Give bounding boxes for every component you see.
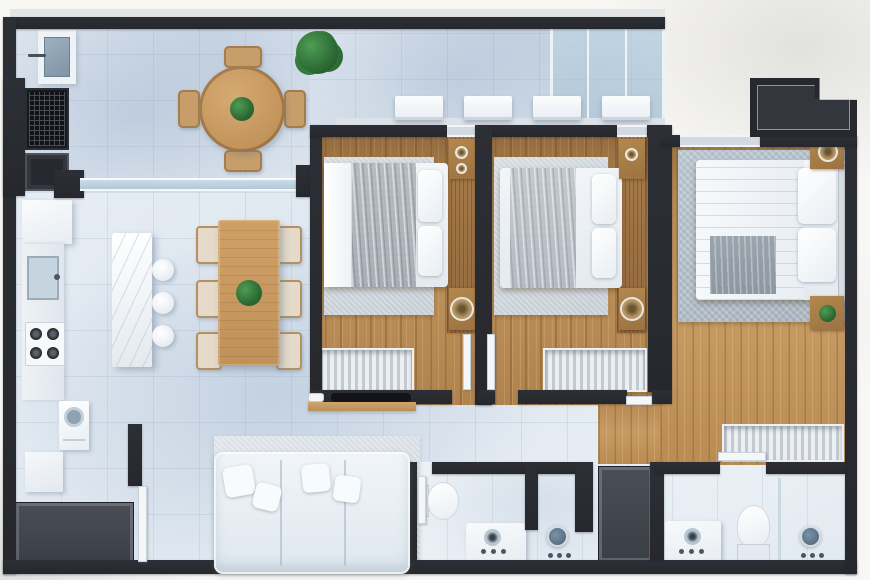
bedroom-1-wardrobe xyxy=(318,348,414,392)
wall xyxy=(538,462,575,474)
bedroom-2-bed xyxy=(500,168,622,288)
sink-icon xyxy=(684,528,701,545)
wall xyxy=(477,125,617,137)
ensuite-toilet xyxy=(737,505,770,547)
laundry-door xyxy=(138,486,147,562)
shower-control-dot xyxy=(810,553,815,558)
laundry-cabinet xyxy=(25,452,63,492)
throw-pillow xyxy=(332,474,361,503)
media-device xyxy=(308,393,324,402)
cushion-seam xyxy=(280,460,282,566)
laundry-dark-counter xyxy=(15,502,134,564)
table-plant xyxy=(230,97,254,121)
shower-head-icon xyxy=(547,526,568,547)
wall xyxy=(648,125,672,392)
washer-door-icon xyxy=(64,407,84,427)
bed-pillow xyxy=(592,174,616,224)
bed-pillow xyxy=(592,228,616,278)
bedroom-2-door xyxy=(487,334,495,390)
bed-duvet xyxy=(510,168,576,288)
wall xyxy=(432,462,525,474)
bedroom-2-window xyxy=(617,125,647,137)
bed-sheet xyxy=(324,163,352,287)
ac-unit xyxy=(533,96,581,120)
sectional-sofa xyxy=(214,452,410,574)
balcony-chair xyxy=(178,90,200,128)
ac-unit xyxy=(464,96,512,120)
service-duct-cabinet xyxy=(598,466,653,562)
shower-control-dot xyxy=(801,553,806,558)
bar-stool xyxy=(152,259,174,281)
shower-control-dot xyxy=(557,553,562,558)
ensuite-door xyxy=(718,452,766,461)
shower-control-dot xyxy=(566,553,571,558)
shower-glass-divider xyxy=(778,478,781,560)
washing-machine xyxy=(59,401,89,450)
toilet-tank xyxy=(737,544,770,561)
balcony-sink-faucet xyxy=(28,54,46,57)
grill-grate xyxy=(29,92,65,146)
ac-unit xyxy=(602,96,650,120)
bedroom-1-bed xyxy=(324,163,448,287)
throw-pillow xyxy=(301,463,332,494)
lamp-icon xyxy=(455,146,468,159)
balcony-sink-basin xyxy=(44,37,70,77)
wall xyxy=(3,560,857,574)
wall xyxy=(525,462,538,530)
wall xyxy=(652,390,672,404)
faucet-dot xyxy=(679,549,684,554)
bar-stool xyxy=(152,292,174,314)
cooktop xyxy=(25,322,65,366)
tv xyxy=(331,393,411,402)
wall xyxy=(478,390,495,404)
bed-pillow xyxy=(418,226,442,276)
washer-panel-line xyxy=(63,439,85,441)
shower-control-dot xyxy=(548,553,553,558)
wall xyxy=(845,135,857,574)
master-window xyxy=(680,135,760,147)
kitchen-tall-cabinet xyxy=(22,200,72,244)
wall xyxy=(3,78,25,196)
barbecue-grill xyxy=(25,88,69,150)
faucet-dot xyxy=(689,549,694,554)
gray-throw-blanket xyxy=(710,236,776,294)
wall xyxy=(310,125,447,137)
bed-pillow xyxy=(798,228,836,282)
kitchen-faucet xyxy=(54,274,60,280)
wall xyxy=(310,125,322,405)
bed-duvet xyxy=(352,163,416,287)
wall xyxy=(655,462,720,474)
lamp-icon xyxy=(625,148,638,161)
balcony-chair xyxy=(224,46,262,68)
burner-icon xyxy=(47,347,59,359)
wall xyxy=(650,462,664,560)
toilet xyxy=(427,482,459,520)
bedroom-1-window xyxy=(447,125,477,137)
lamp-icon xyxy=(450,297,474,321)
potted-plant xyxy=(296,31,339,74)
wall xyxy=(575,462,593,532)
wall xyxy=(10,17,665,29)
master-suite-door xyxy=(626,396,652,405)
burner-icon xyxy=(30,347,42,359)
floor-plan-render xyxy=(0,0,870,580)
service-shaft xyxy=(750,78,857,137)
shower-control-dot xyxy=(819,553,824,558)
bathroom-door xyxy=(418,476,426,524)
wall xyxy=(766,462,845,474)
balcony-glass-partition xyxy=(80,178,302,191)
lamp-icon xyxy=(456,163,467,174)
wall xyxy=(128,424,142,486)
ac-unit xyxy=(395,96,443,120)
balcony-chair xyxy=(284,90,306,128)
throw-pillow xyxy=(222,464,257,499)
bed-pillow xyxy=(798,168,836,224)
bedroom-1-door xyxy=(463,334,471,390)
lamp-icon xyxy=(620,297,644,321)
nightstand-plant xyxy=(819,305,836,322)
media-shelf xyxy=(308,402,416,411)
faucet-dot xyxy=(491,549,496,554)
kitchen-island xyxy=(112,233,152,367)
burner-icon xyxy=(47,328,59,340)
wall xyxy=(518,390,627,404)
shaft-inner-line xyxy=(757,85,850,130)
bedroom-2-wardrobe xyxy=(543,348,647,392)
faucet-dot xyxy=(481,549,486,554)
wall xyxy=(660,135,680,147)
bed-pillow xyxy=(418,170,442,222)
balcony-chair xyxy=(224,150,262,172)
faucet-dot xyxy=(501,549,506,554)
master-bed xyxy=(696,160,846,300)
throw-pillow xyxy=(251,481,283,513)
faucet-dot xyxy=(699,549,704,554)
sink-icon xyxy=(484,529,501,546)
shower-head-icon xyxy=(800,526,821,547)
dining-table-plant xyxy=(236,280,262,306)
bar-stool xyxy=(152,325,174,347)
burner-icon xyxy=(30,328,42,340)
